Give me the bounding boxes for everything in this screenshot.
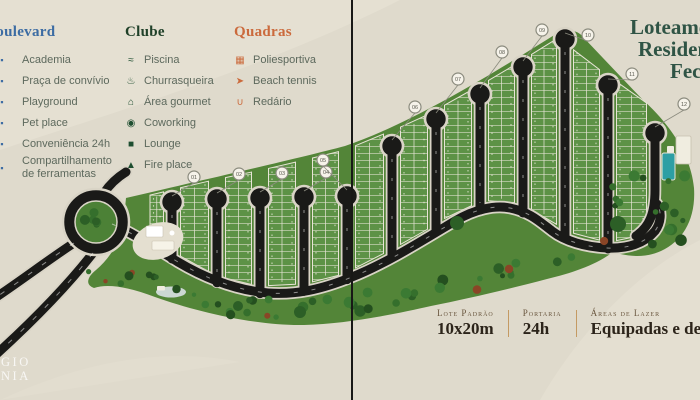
legend-boulevard-title: Boulevard (0, 24, 118, 41)
legend-item: ■Lounge (125, 134, 214, 155)
legend-quadras-title: Quadras (234, 24, 317, 41)
sports-court-icon: ▦ (234, 54, 246, 67)
legend-item: ∪Redário (234, 92, 317, 113)
spec-item: Portaria24h (509, 308, 576, 339)
cul-de-sac-bulb (470, 84, 489, 103)
legend-item: ➤Beach tennis (234, 71, 317, 92)
convenience-24h-icon: ▪ (0, 138, 8, 151)
legend-item-label: Coworking (144, 117, 196, 130)
quadra-marker-number: 09 (539, 28, 545, 34)
playground-icon: ▪ (0, 96, 8, 109)
pool-icon: ≈ (125, 54, 137, 67)
legend-item: ▪Compartilhamento de ferramentas (0, 155, 118, 181)
site-plan-poster: 010203040506070809101112 Boulevard ▪Acad… (0, 0, 700, 400)
cul-de-sac-bulb (382, 136, 401, 155)
legend-clube: Clube ≈Piscina♨Churrasqueira⌂Área gourme… (125, 24, 214, 176)
legend-item-label: Pet place (22, 117, 68, 130)
legend-item-label: Área gourmet (144, 96, 211, 109)
legend-item: ♨Churrasqueira (125, 71, 214, 92)
spec-item: Lote Padrão10x20m (437, 308, 508, 339)
roundabout (63, 189, 129, 255)
spec-label: Portaria (523, 308, 562, 318)
developer-logo-line: NIA (1, 369, 31, 383)
legend-item: ▪Praça de convívio (0, 71, 118, 92)
spec-value: 10x20m (437, 319, 494, 339)
beach-tennis-icon: ➤ (234, 75, 246, 88)
legend-quadras: Quadras ▦Poliesportiva➤Beach tennis∪Redá… (234, 24, 317, 113)
legend-quadras-items: ▦Poliesportiva➤Beach tennis∪Redário (234, 50, 317, 113)
pet-place-icon: ▪ (0, 117, 8, 130)
gourmet-area-icon: ⌂ (125, 96, 137, 109)
legend-item: ▲Fire place (125, 155, 214, 176)
cul-de-sac-bulb (207, 189, 226, 208)
legend-item-label: Compartilhamento de ferramentas (22, 155, 118, 181)
legend-boulevard-items: ▪Academia▪Praça de convívio▪Playground▪P… (0, 50, 118, 181)
legend-item: ≈Piscina (125, 50, 214, 71)
legend-item-label: Beach tennis (253, 75, 317, 88)
plaza-icon: ▪ (0, 75, 8, 88)
cul-de-sac-bulb (426, 109, 445, 128)
legend-boulevard: Boulevard ▪Academia▪Praça de convívio▪Pl… (0, 24, 118, 181)
quadra-marker-number: 12 (681, 102, 687, 108)
project-title: Loteamento Residencial Fechado (630, 16, 700, 82)
legend-item-label: Piscina (144, 54, 179, 67)
quadra-marker-number: 10 (585, 33, 591, 39)
legend-item: ▪Academia (0, 50, 118, 71)
legend-item-label: Poliesportiva (253, 54, 316, 67)
project-title-line: Residencial (638, 38, 700, 60)
fireplace-icon: ▲ (125, 159, 137, 172)
spec-item: Áreas de LazerEquipadas e decoradas (577, 308, 700, 339)
legend-item: ▪Playground (0, 92, 118, 113)
legend-clube-items: ≈Piscina♨Churrasqueira⌂Área gourmet◉Cowo… (125, 50, 214, 176)
lounge-icon: ■ (125, 138, 137, 151)
legend-item-label: Lounge (144, 138, 181, 151)
developer-logo-line: GIO (1, 355, 31, 369)
quadra-marker-number: 02 (236, 172, 242, 178)
legend-item: ▦Poliesportiva (234, 50, 317, 71)
project-title-line: Loteamento (630, 16, 700, 38)
cul-de-sac-bulb (337, 186, 356, 205)
cul-de-sac-bulb (250, 188, 269, 207)
spec-label: Lote Padrão (437, 308, 494, 318)
quadra-marker-number: 05 (320, 158, 326, 164)
background-swoosh (0, 356, 240, 400)
spec-label: Áreas de Lazer (591, 308, 700, 318)
specs-bar: Lote Padrão10x20mPortaria24hÁreas de Laz… (437, 308, 700, 339)
page-fold-divider (351, 0, 354, 400)
spec-value: Equipadas e decoradas (591, 319, 700, 339)
quadra-marker-number: 06 (412, 105, 418, 111)
cul-de-sac-bulb (294, 187, 313, 206)
legend-item-label: Fire place (144, 159, 192, 172)
cul-de-sac-bulb (555, 29, 574, 48)
spec-value: 24h (523, 319, 562, 339)
legend-clube-title: Clube (125, 24, 214, 41)
tool-sharing-icon: ▪ (0, 162, 8, 175)
cul-de-sac-bulb (598, 75, 617, 94)
legend-item-label: Redário (253, 96, 292, 109)
cul-de-sac-bulb (162, 192, 181, 211)
legend-item-label: Conveniência 24h (22, 138, 110, 151)
legend-item: ⌂Área gourmet (125, 92, 214, 113)
developer-logo: GIO NIA (1, 355, 31, 383)
quadra-marker-number: 08 (499, 50, 505, 56)
legend-item-label: Praça de convívio (22, 75, 109, 88)
legend-item-label: Churrasqueira (144, 75, 214, 88)
legend-item: ◉Coworking (125, 113, 214, 134)
legend-item: ▪Conveniência 24h (0, 134, 118, 155)
quadra-marker-number: 03 (279, 171, 285, 177)
quadra-marker-number: 07 (455, 77, 461, 83)
gym-icon: ▪ (0, 54, 8, 67)
project-title-line: Fechado (670, 60, 700, 82)
hammock-icon: ∪ (234, 96, 246, 109)
grill-icon: ♨ (125, 75, 137, 88)
cul-de-sac-bulb (645, 123, 664, 142)
legend-item-label: Academia (22, 54, 71, 67)
legend-item-label: Playground (22, 96, 78, 109)
coworking-icon: ◉ (125, 117, 137, 130)
cul-de-sac-bulb (513, 57, 532, 76)
legend-item: ▪Pet place (0, 113, 118, 134)
